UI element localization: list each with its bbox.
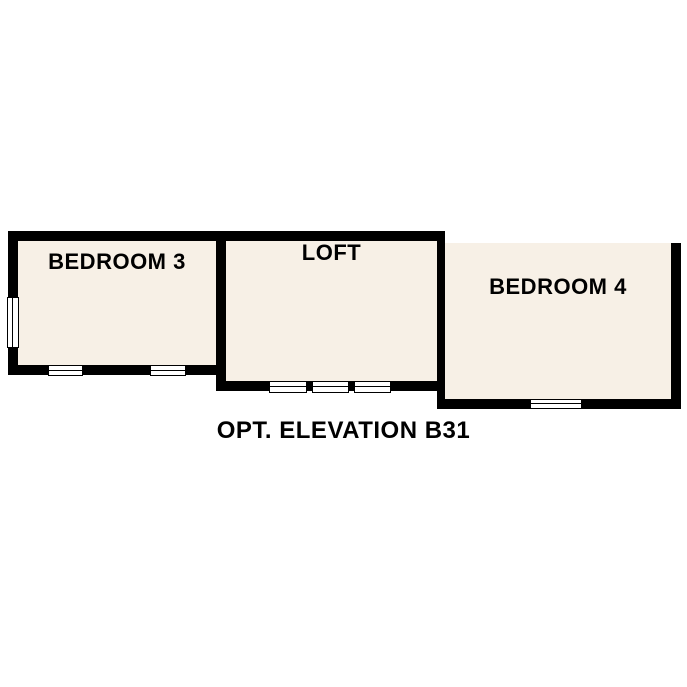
window-icon-loft-bottom-3 xyxy=(354,381,391,393)
window-icon-bedroom3-left xyxy=(7,297,19,348)
window-icon-loft-bottom-1 xyxy=(269,381,307,393)
wall-bottom-bedroom3 xyxy=(8,365,226,375)
wall-top xyxy=(8,231,445,241)
room-label-loft: LOFT xyxy=(226,242,437,264)
floorplan-canvas: BEDROOM 3 LOFT BEDROOM 4 OPT. ELEVATION … xyxy=(0,0,687,687)
window-icon-bedroom3-bottom-2 xyxy=(150,365,186,376)
room-bedroom-4-floor xyxy=(445,243,671,399)
window-icon-bedroom4-bottom xyxy=(530,399,582,409)
window-icon-loft-bottom-2 xyxy=(312,381,349,393)
wall-right xyxy=(671,243,681,409)
plan-caption: OPT. ELEVATION B31 xyxy=(0,417,687,445)
room-label-bedroom-3: BEDROOM 3 xyxy=(18,251,216,273)
window-icon-bedroom3-bottom-1 xyxy=(48,365,83,376)
room-label-bedroom-4: BEDROOM 4 xyxy=(445,276,671,298)
